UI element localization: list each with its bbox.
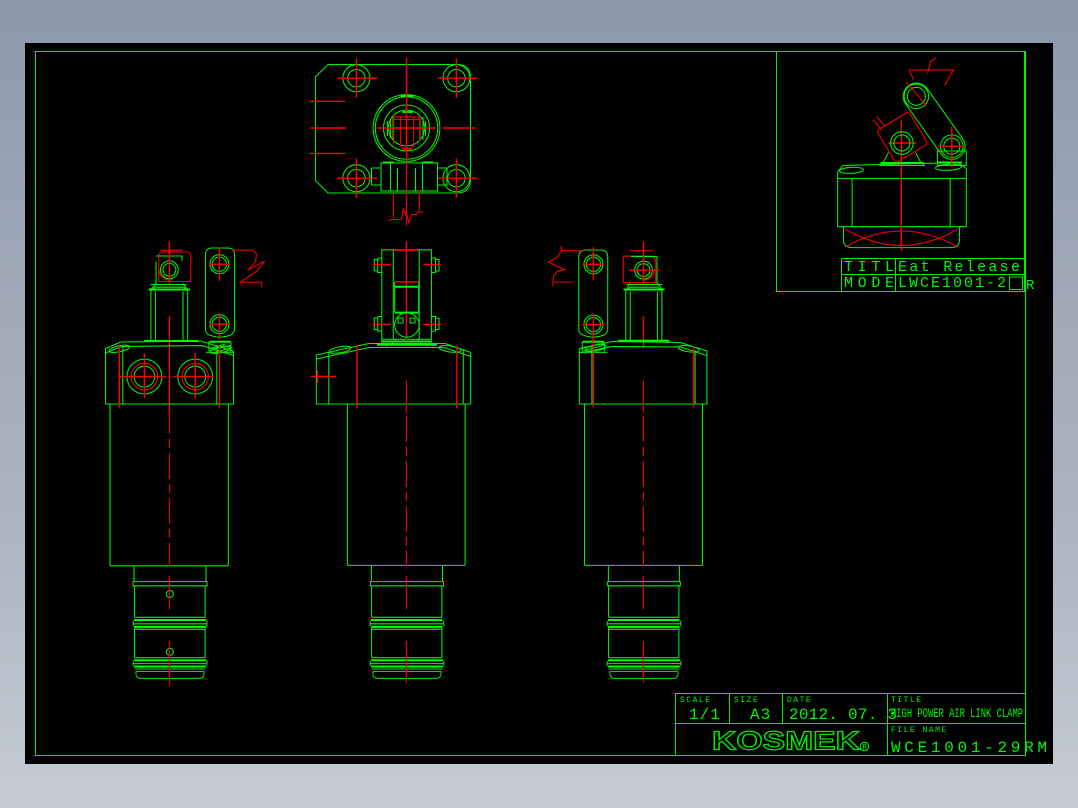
svg-text:HIGH POWER AIR LINK CLAMP: HIGH POWER AIR LINK CLAMP <box>891 707 1023 721</box>
svg-text:TITLE: TITLE <box>891 696 923 705</box>
svg-text:Eat Release: Eat Release <box>898 259 1020 276</box>
svg-text:KOSMEK: KOSMEK <box>712 726 860 756</box>
svg-text:R: R <box>862 744 867 753</box>
svg-text:R: R <box>1026 278 1035 294</box>
svg-text:SIZE: SIZE <box>734 696 759 705</box>
svg-text:A3: A3 <box>750 706 771 724</box>
svg-text:2012. 07. 3: 2012. 07. 3 <box>789 706 897 724</box>
svg-text:SCALE: SCALE <box>680 696 712 705</box>
svg-text:DATE: DATE <box>787 696 812 705</box>
svg-text:LWCE1001-2: LWCE1001-2 <box>898 275 1006 292</box>
svg-text:FILE NAME: FILE NAME <box>891 726 948 735</box>
svg-text:1/1: 1/1 <box>689 706 721 724</box>
